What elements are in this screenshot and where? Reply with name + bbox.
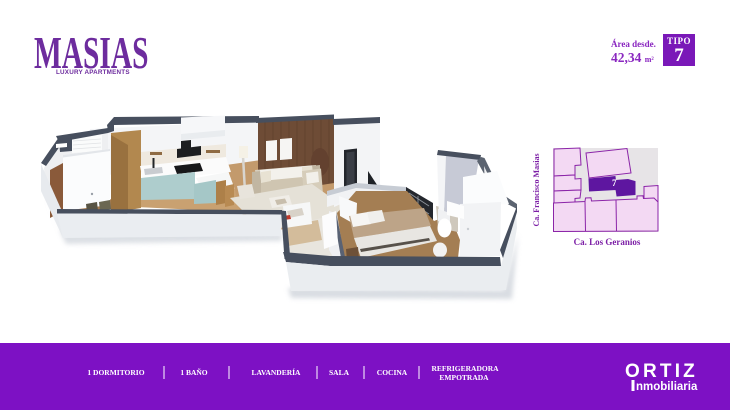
svg-text:1 BAÑO: 1 BAÑO: [180, 368, 207, 377]
svg-text:REFRIGERADORA: REFRIGERADORA: [431, 364, 499, 373]
svg-text:nmobiliaria: nmobiliaria: [636, 381, 698, 393]
svg-text:1 DORMITORIO: 1 DORMITORIO: [87, 368, 144, 377]
svg-text:SALA: SALA: [329, 368, 350, 377]
svg-text:7: 7: [612, 178, 617, 188]
svg-text:COCINA: COCINA: [377, 368, 408, 377]
svg-text:EMPOTRADA: EMPOTRADA: [439, 373, 489, 382]
svg-text:LAVANDERÍA: LAVANDERÍA: [252, 367, 301, 377]
svg-text:Ca. Francisco Masias: Ca. Francisco Masias: [532, 153, 541, 226]
svg-text:ORTIZ: ORTIZ: [625, 361, 698, 382]
svg-text:Ca. Los Geranios: Ca. Los Geranios: [574, 237, 641, 247]
